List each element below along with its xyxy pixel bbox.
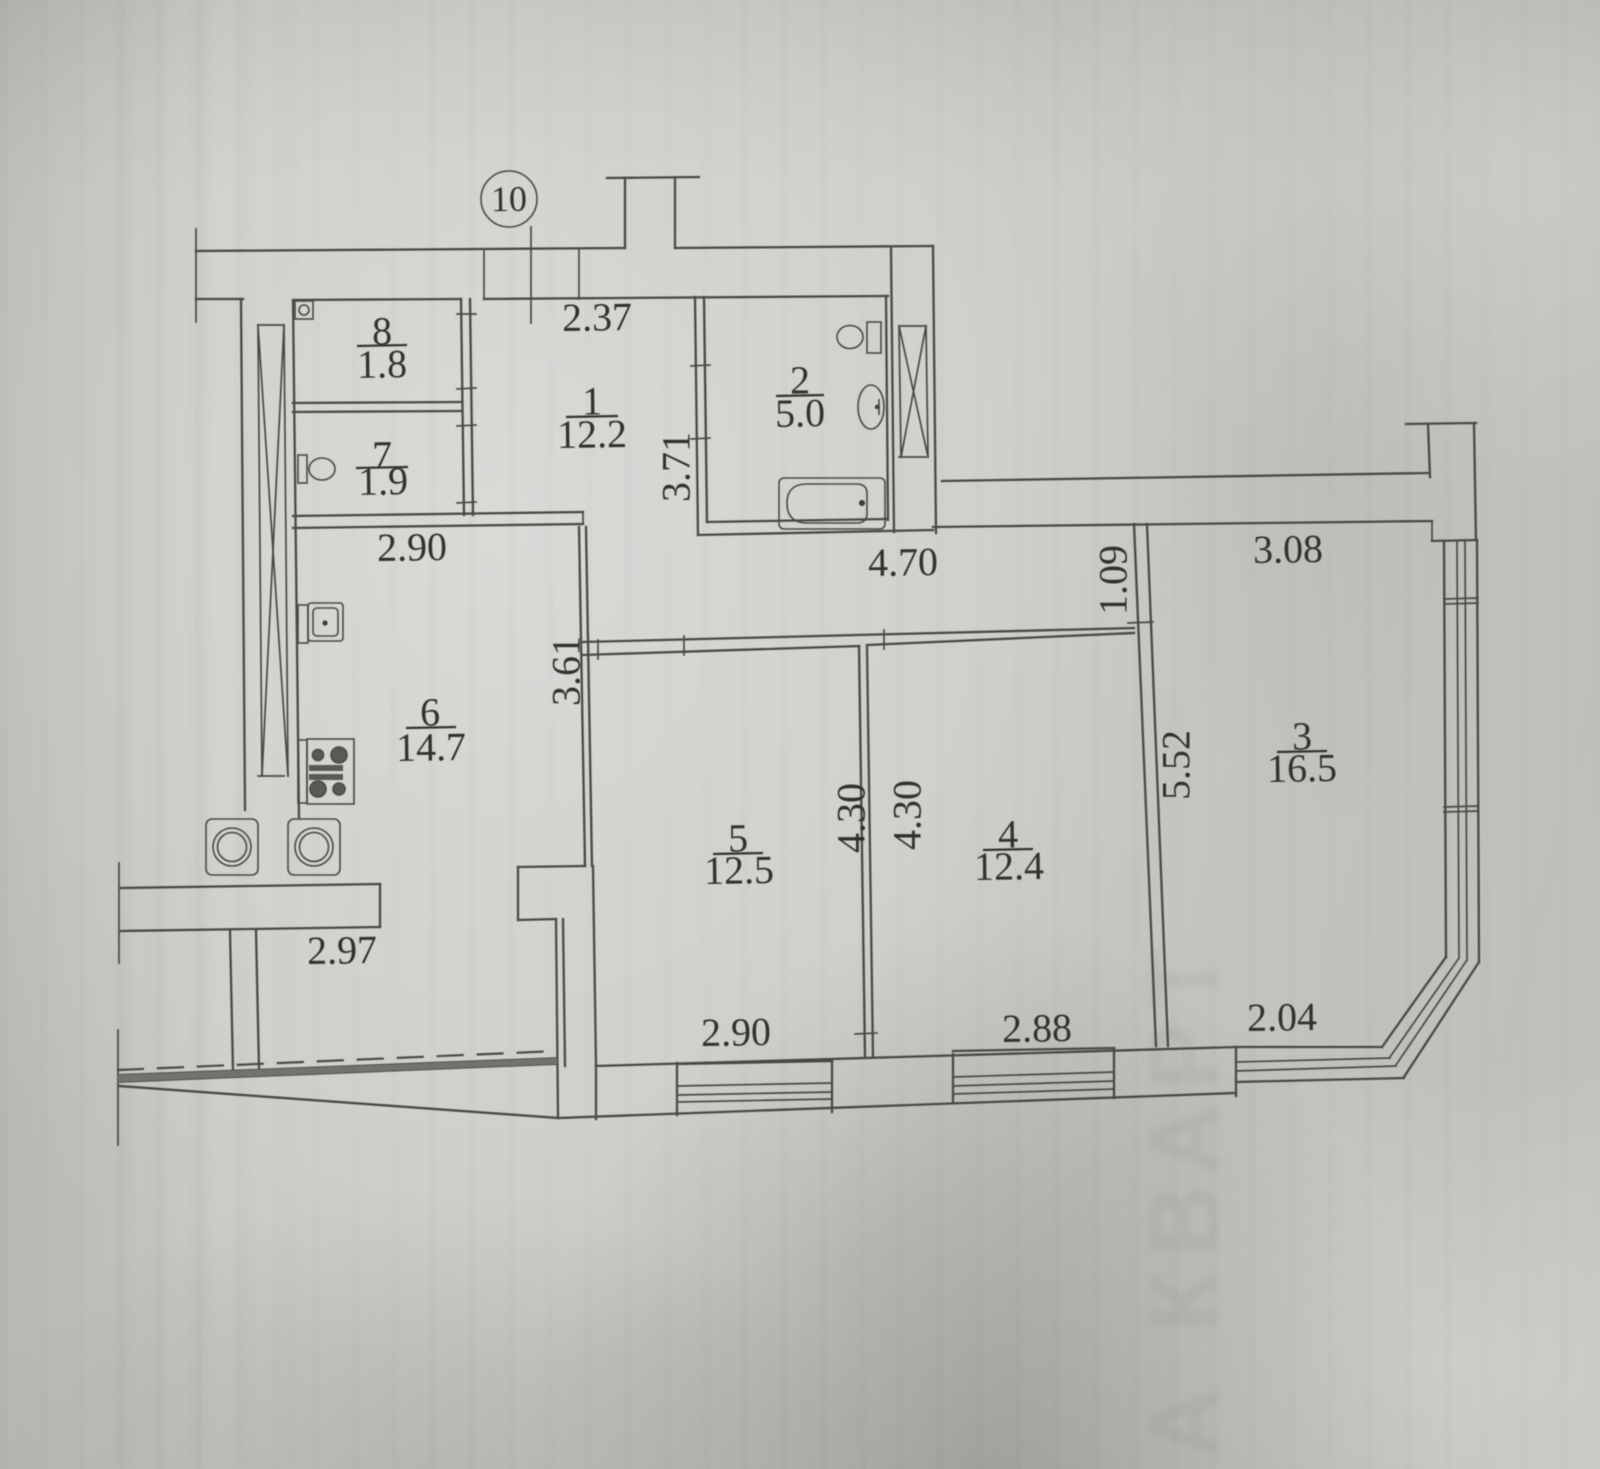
svg-text:2.37: 2.37 bbox=[562, 294, 633, 340]
svg-text:5.52: 5.52 bbox=[1154, 730, 1199, 800]
svg-text:12.5: 12.5 bbox=[704, 847, 775, 893]
svg-text:8: 8 bbox=[372, 308, 393, 353]
svg-text:12.2: 12.2 bbox=[557, 411, 628, 457]
svg-text:1.8: 1.8 bbox=[357, 341, 408, 387]
svg-text:2: 2 bbox=[790, 357, 811, 402]
svg-text:4.30: 4.30 bbox=[829, 783, 874, 853]
svg-text:4.70: 4.70 bbox=[868, 539, 939, 585]
svg-text:2.88: 2.88 bbox=[1002, 1005, 1073, 1051]
svg-text:2.90: 2.90 bbox=[701, 1009, 772, 1055]
svg-text:16.5: 16.5 bbox=[1267, 745, 1338, 791]
svg-text:3.71: 3.71 bbox=[654, 432, 699, 502]
svg-text:5.0: 5.0 bbox=[775, 390, 826, 436]
svg-text:10: 10 bbox=[491, 179, 528, 219]
svg-text:7: 7 bbox=[372, 432, 393, 477]
svg-text:3: 3 bbox=[1292, 713, 1313, 758]
svg-text:2.04: 2.04 bbox=[1247, 994, 1318, 1040]
svg-text:3.08: 3.08 bbox=[1253, 526, 1324, 572]
svg-text:5: 5 bbox=[728, 815, 749, 860]
svg-text:1.9: 1.9 bbox=[358, 458, 409, 504]
svg-text:14.7: 14.7 bbox=[396, 724, 467, 770]
svg-text:1: 1 bbox=[582, 378, 603, 423]
svg-text:3.61: 3.61 bbox=[544, 636, 589, 706]
svg-text:4: 4 bbox=[998, 811, 1019, 856]
svg-text:1.09: 1.09 bbox=[1091, 545, 1136, 615]
svg-text:2.90: 2.90 bbox=[377, 524, 448, 570]
svg-text:6: 6 bbox=[420, 689, 441, 734]
svg-text:4.30: 4.30 bbox=[885, 780, 930, 850]
svg-text:12.4: 12.4 bbox=[974, 843, 1045, 889]
svg-text:2.97: 2.97 bbox=[307, 927, 378, 973]
